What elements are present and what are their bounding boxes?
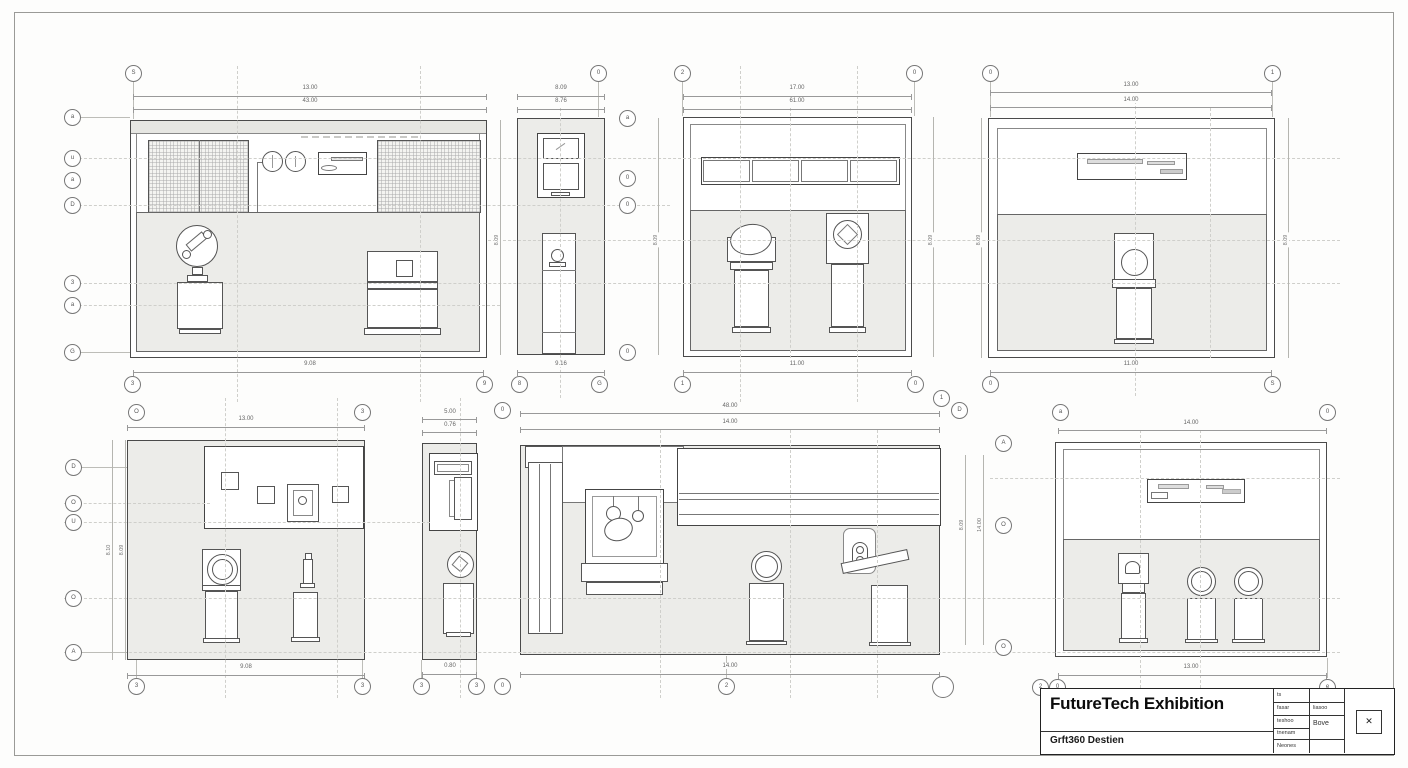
- grid-bubble: D: [64, 197, 81, 214]
- pedestal-foot: [1119, 638, 1148, 643]
- dim-label: 0.76: [442, 422, 458, 428]
- dim-line: [517, 372, 605, 373]
- pedestal-column: [1187, 598, 1216, 641]
- extension-line: [990, 81, 991, 117]
- leader-line: [80, 352, 130, 353]
- title-block: FutureTech Exhibition Grft360 Destien ts…: [1040, 688, 1395, 755]
- grid-line: [64, 598, 1340, 599]
- pedestal-foot: [203, 638, 240, 643]
- grid-line: [660, 430, 661, 698]
- grid-bubble: 0: [1319, 404, 1336, 421]
- grid-bubble: 3: [128, 678, 145, 695]
- dim-line: [520, 413, 940, 414]
- table-line: [1344, 689, 1345, 753]
- grid-line: [1135, 96, 1136, 396]
- dim-line: [990, 92, 1272, 93]
- dim-label: 48.00: [720, 403, 739, 409]
- grid-bubble: 0: [982, 376, 999, 393]
- grid-bubble: S: [1264, 376, 1281, 393]
- grid-line: [488, 240, 1340, 241]
- grid-line: [857, 66, 858, 402]
- pedestal-foot: [1114, 339, 1154, 344]
- showcase-plinth: [581, 563, 668, 582]
- dim-line: [517, 109, 605, 110]
- grid-line: [64, 305, 500, 306]
- art-square: [221, 472, 239, 490]
- dim-line: [422, 674, 477, 675]
- vdim-label: 8.09: [119, 543, 125, 558]
- sign-label: [1160, 169, 1183, 174]
- elevation-panel-2: [517, 118, 605, 355]
- disc-exhibit-inner: [755, 555, 778, 578]
- console-door: [454, 477, 472, 520]
- ring-exhibit-inner: [1238, 571, 1259, 592]
- grid-bubble: 3: [64, 275, 81, 292]
- extension-line: [598, 81, 599, 117]
- kiosk-screen: [543, 138, 579, 159]
- tiny-annotation-text: [301, 136, 419, 138]
- vdim-label: 14.00: [977, 516, 983, 534]
- project-subtitle: Grft360 Destien: [1050, 735, 1124, 746]
- tb-cell: Neones: [1277, 743, 1296, 749]
- grid-bubble: G: [64, 344, 81, 361]
- callout-leader: [257, 162, 258, 216]
- robot-arm-joint: [182, 250, 191, 259]
- grid-bubble: 0: [590, 65, 607, 82]
- dim-line: [990, 107, 1272, 108]
- grid-bubble: A: [65, 644, 82, 661]
- bottle-stand: [300, 583, 315, 588]
- grid-line: [64, 503, 210, 504]
- emblem-stand-cap: [187, 275, 208, 282]
- drawing-sheet: 13.00 43.00 9.08 8.09 8.76 9.16 17.00 61…: [0, 0, 1408, 768]
- vdim-line: [125, 440, 126, 660]
- tb-cell: fasar: [1277, 705, 1289, 711]
- pedestal-foot: [732, 327, 771, 333]
- elevation-panel-1: [130, 120, 487, 358]
- vdim-line: [965, 455, 966, 645]
- dim-label: 43.00: [300, 98, 319, 104]
- window-pane: [801, 160, 848, 182]
- grid-line: [790, 108, 791, 358]
- sign-bar: [1158, 484, 1189, 489]
- dim-line: [1058, 430, 1327, 431]
- dim-line: [520, 429, 940, 430]
- pedestal-foot: [746, 641, 787, 645]
- grid-bubble: 0: [907, 376, 924, 393]
- dim-label: 8.76: [553, 98, 569, 104]
- leader-line: [80, 117, 130, 118]
- grid-line: [790, 430, 791, 698]
- vdim-label: 8.09: [1283, 233, 1289, 248]
- table-line: [1273, 702, 1344, 703]
- window-pane: [752, 160, 799, 182]
- grid-bubble: 0: [619, 344, 636, 361]
- pedestal-foot: [446, 632, 471, 637]
- grid-bubble: O: [995, 517, 1012, 534]
- tb-cell: liasoo: [1313, 705, 1327, 711]
- dim-line: [127, 427, 365, 428]
- grid-bubble: [932, 676, 954, 698]
- grid-bubble: a: [64, 297, 81, 314]
- cabinet-divider: [542, 270, 576, 271]
- elevation-panel-4: [988, 118, 1275, 358]
- bottle-exhibit: [303, 559, 313, 584]
- extension-line: [133, 81, 134, 119]
- dim-line: [133, 372, 484, 373]
- dim-line: [520, 674, 940, 675]
- display-pillar: [528, 462, 563, 634]
- info-plate: [318, 152, 367, 175]
- pedestal-foot: [829, 327, 866, 333]
- dim-label: 9.08: [238, 664, 254, 670]
- dim-line: [1058, 675, 1327, 676]
- grid-bubble: O: [995, 639, 1012, 656]
- grid-bubble: 0: [906, 65, 923, 82]
- dim-label: 11.00: [1122, 361, 1141, 367]
- grid-bubble: 2: [718, 678, 735, 695]
- pedestal-foot: [1185, 639, 1218, 643]
- dim-line: [422, 419, 477, 420]
- showcase-plinth-foot: [586, 582, 663, 595]
- dim-label: 9.08: [302, 361, 318, 367]
- grid-line: [237, 66, 238, 402]
- grid-line: [1140, 430, 1141, 698]
- lightbox-line: [679, 514, 939, 515]
- dim-label: 14.00: [720, 419, 739, 425]
- dim-label: 0.80: [442, 663, 458, 669]
- grid-bubble: 0: [494, 402, 511, 419]
- grid-line: [560, 108, 561, 398]
- pedestal-foot: [1232, 639, 1265, 643]
- grid-bubble: U: [65, 514, 82, 531]
- dim-label: 13.00: [1121, 82, 1140, 88]
- grid-bubble: 0: [619, 170, 636, 187]
- grid-bubble: 1: [1264, 65, 1281, 82]
- grid-line: [64, 205, 670, 206]
- art-square: [332, 486, 349, 503]
- info-plate-oval: [321, 165, 337, 171]
- dim-label: 9.16: [553, 361, 569, 367]
- pillar-line: [539, 464, 540, 632]
- emblem-stand: [192, 267, 203, 275]
- vdim-line: [500, 120, 501, 355]
- grid-bubble: 8: [511, 376, 528, 393]
- dim-label: 14.00: [1181, 420, 1200, 426]
- dim-label: 11.00: [788, 361, 807, 367]
- grid-line: [877, 430, 878, 698]
- sign-label: [1222, 489, 1241, 494]
- grid-line: [1200, 430, 1201, 698]
- grid-bubble: D: [951, 402, 968, 419]
- elevation-panel-3: [683, 117, 912, 357]
- pedestal-column: [443, 583, 474, 634]
- dim-label: 14.00: [1121, 97, 1140, 103]
- grid-bubble: 9: [476, 376, 493, 393]
- display-foot: [364, 328, 441, 335]
- grid-bubble: a: [1052, 404, 1069, 421]
- dim-line: [683, 372, 912, 373]
- grid-line: [64, 652, 1340, 653]
- grid-line: [64, 158, 1340, 159]
- grid-bubble: a: [64, 109, 81, 126]
- grid-bubble: A: [995, 435, 1012, 452]
- mesh-screen-right: [377, 140, 481, 213]
- pedestal-column: [293, 592, 318, 639]
- pedestal-column: [1121, 593, 1146, 640]
- exhibit-object-base: [549, 262, 566, 267]
- grid-bubble: D: [65, 459, 82, 476]
- grid-bubble: a: [619, 110, 636, 127]
- dim-label: 61.00: [787, 98, 806, 104]
- table-line: [1273, 728, 1309, 729]
- grid-bubble: a: [64, 172, 81, 189]
- pedestal-foot: [179, 329, 221, 334]
- table-line: [1273, 739, 1344, 740]
- dome-exhibit: [1125, 561, 1140, 574]
- dim-label: 14.00: [720, 663, 739, 669]
- elevation-panel-6: [422, 443, 477, 660]
- window-pane: [703, 160, 750, 182]
- tb-cell: ts: [1277, 692, 1281, 698]
- leader-line: [80, 652, 127, 653]
- vdim-label: 8.09: [976, 233, 982, 248]
- lightbox-line: [679, 493, 939, 494]
- tb-cell: teshoo: [1277, 718, 1294, 724]
- dim-line: [683, 96, 912, 97]
- grid-bubble: O: [65, 495, 82, 512]
- grid-bubble: 1: [933, 390, 950, 407]
- extension-line: [1327, 658, 1328, 678]
- grid-line: [740, 66, 741, 402]
- dim-label: 8.09: [553, 85, 569, 91]
- grid-line: [990, 478, 1340, 479]
- pedestal-foot: [291, 637, 320, 642]
- table-line: [1273, 689, 1274, 753]
- pedestal-column: [749, 583, 784, 641]
- grid-bubble: 0: [619, 197, 636, 214]
- grid-line: [64, 283, 1340, 284]
- capsule-port: [856, 546, 864, 554]
- pedestal-foot: [869, 642, 911, 646]
- pedestal-band: [730, 262, 773, 270]
- vdim-line: [112, 440, 113, 660]
- dim-line: [133, 96, 487, 97]
- grid-bubble: 0: [982, 65, 999, 82]
- pillar-line: [550, 464, 551, 632]
- display-cube: [396, 260, 413, 277]
- grid-line: [64, 522, 430, 523]
- grid-bubble: O: [65, 590, 82, 607]
- grid-bubble: O: [128, 404, 145, 421]
- ring-exhibit-inner: [1191, 571, 1212, 592]
- grid-line: [460, 398, 461, 698]
- table-line: [1273, 715, 1344, 716]
- dim-label: 17.00: [787, 85, 806, 91]
- grid-bubble: 0: [494, 678, 511, 695]
- project-title: FutureTech Exhibition: [1050, 694, 1224, 714]
- elevation-panel-8: [1055, 442, 1327, 657]
- vdim-label: 8.09: [494, 233, 500, 248]
- lens-inner: [212, 559, 233, 580]
- vdim-label: 8.10: [106, 543, 112, 558]
- console-bar-inner: [437, 464, 469, 472]
- grid-bubble: 3: [354, 404, 371, 421]
- grid-bubble: S: [125, 65, 142, 82]
- sign-glyph: [1151, 492, 1168, 499]
- tb-cell: tnenam: [1277, 730, 1295, 736]
- pedestal-column: [1234, 598, 1263, 641]
- vdim-label: 8.09: [959, 518, 965, 533]
- grid-line: [420, 66, 421, 402]
- grid-line: [225, 398, 226, 698]
- dim-label: 13.00: [300, 85, 319, 91]
- hanging-orb: [632, 510, 644, 522]
- lightbox-line: [679, 499, 939, 500]
- grid-bubble: G: [591, 376, 608, 393]
- dim-line: [990, 372, 1272, 373]
- dim-label: 13.00: [1181, 664, 1200, 670]
- callout-mark: [272, 155, 273, 168]
- dim-label: 5.00: [442, 409, 458, 415]
- elevation-panel-5: [127, 440, 365, 660]
- wall-body: [690, 210, 906, 351]
- grid-bubble: 3: [468, 678, 485, 695]
- vdim-label: 8.09: [653, 233, 659, 248]
- sign-bar: [1147, 161, 1175, 165]
- art-square: [257, 486, 275, 504]
- grid-bubble: 1: [674, 376, 691, 393]
- vdim-line: [983, 455, 984, 645]
- robot-arm-joint: [203, 230, 212, 239]
- grid-bubble: u: [64, 150, 81, 167]
- grid-bubble: 3: [413, 678, 430, 695]
- title-divider: [1041, 731, 1273, 732]
- dim-line: [127, 675, 365, 676]
- grid-bubble: 3: [354, 678, 371, 695]
- dim-line: [683, 109, 912, 110]
- kiosk-body: [543, 163, 579, 190]
- dim-line: [517, 96, 605, 97]
- display-cabinet: [367, 289, 438, 328]
- mesh-divider: [199, 140, 200, 213]
- dim-line: [133, 109, 487, 110]
- grid-line: [1210, 108, 1211, 358]
- cabinet-divider: [542, 332, 576, 333]
- grid-bubble: 2: [674, 65, 691, 82]
- exhibit-object: [551, 249, 564, 262]
- extension-line: [914, 81, 915, 116]
- vdim-label: 8.09: [928, 233, 934, 248]
- dim-line: [422, 432, 477, 433]
- grid-line: [337, 398, 338, 698]
- icon-figure: [298, 496, 307, 505]
- pedestal-band: [1122, 583, 1145, 593]
- pedestal-column: [1116, 288, 1152, 339]
- tb-cell: Bove: [1313, 720, 1329, 727]
- leader-line: [80, 467, 127, 468]
- table-line: [1309, 689, 1310, 753]
- dim-label: 13.00: [236, 416, 255, 422]
- pedestal-column: [831, 264, 864, 327]
- extension-line: [1272, 81, 1273, 117]
- grid-bubble: 3: [124, 376, 141, 393]
- stamp-icon: ✕: [1356, 710, 1382, 734]
